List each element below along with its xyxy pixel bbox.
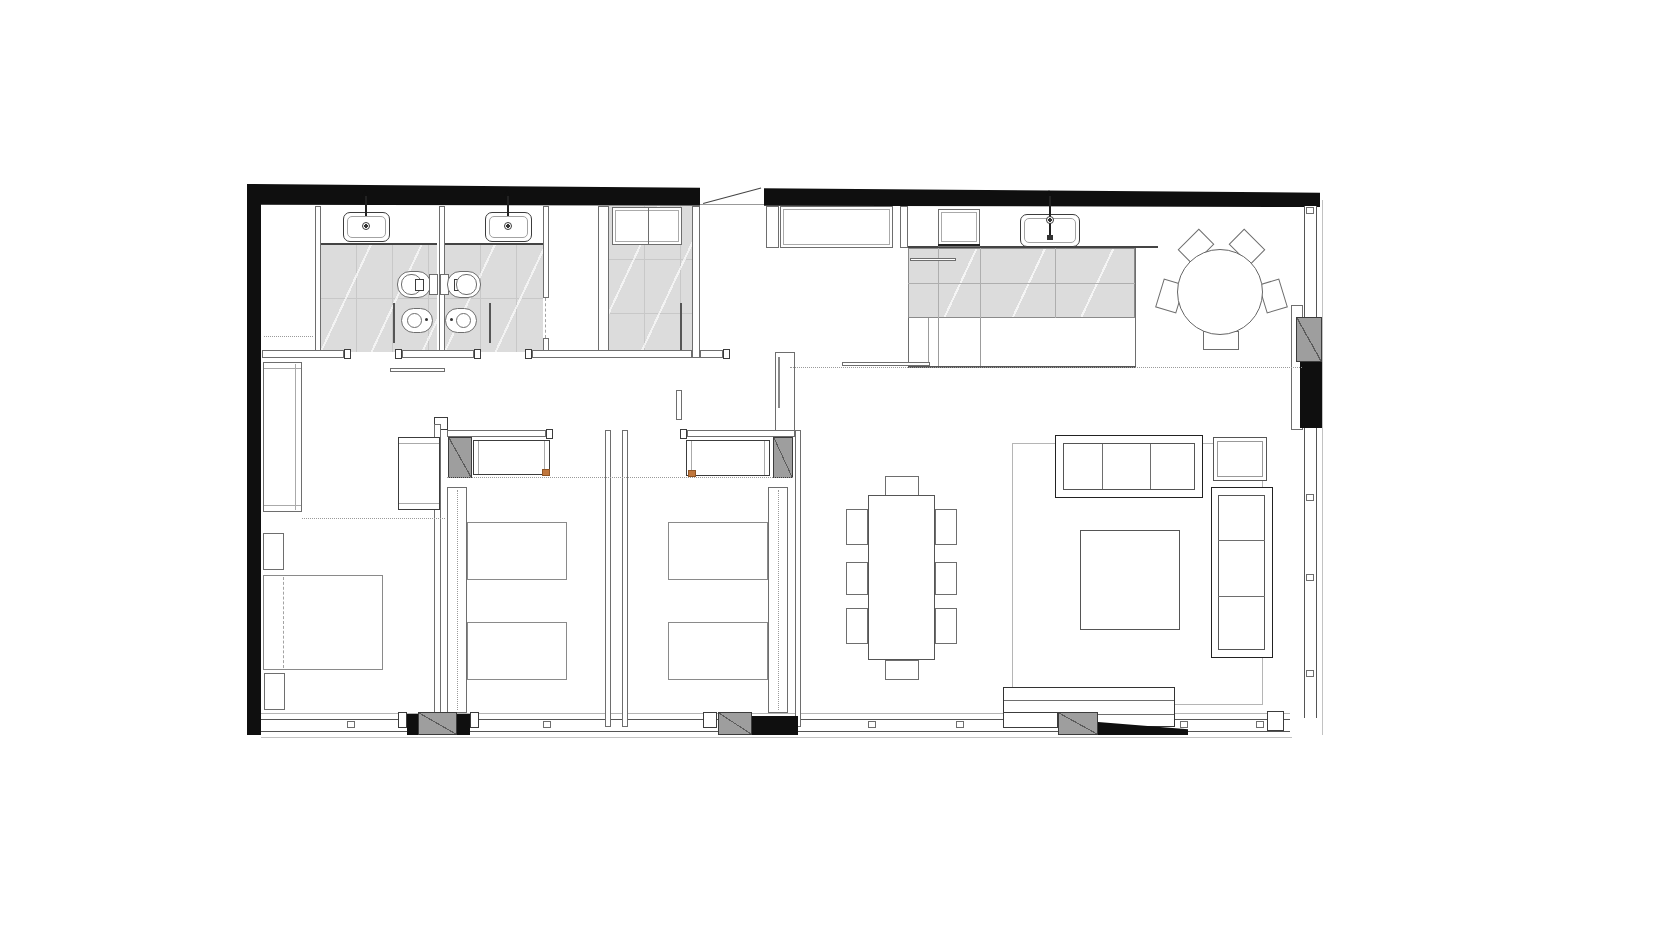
- dining-chair: [935, 509, 957, 545]
- door-jamb: [474, 349, 481, 359]
- entry-door-threshold: [700, 204, 764, 205]
- toilet-flush: [415, 279, 424, 291]
- master-wardrobe: [263, 362, 302, 512]
- bathroom-1-faucet: [365, 196, 367, 216]
- dining-table: [868, 495, 935, 660]
- pier-jamb: [1003, 712, 1058, 728]
- door-jamb: [680, 429, 687, 439]
- master-nightstand: [263, 533, 284, 570]
- laundry-cabinets-inner: [615, 210, 679, 242]
- hall-wall-segment: [700, 350, 723, 358]
- master-desk-inner: [399, 503, 439, 504]
- faucet-arrow-icon: [362, 190, 368, 196]
- master-wardrobe-cap: [264, 505, 301, 506]
- laundry-door-leaf: [680, 303, 682, 352]
- kitchen-faucet-dot: [1046, 216, 1054, 224]
- window-mullion-tick: [347, 721, 355, 728]
- master-double-bed: [263, 575, 383, 670]
- dining-chair: [885, 476, 919, 496]
- laundry-left-wall: [598, 206, 609, 352]
- bedroom-3-north-wall: [687, 430, 795, 437]
- sofa-seat-area: [1218, 495, 1265, 650]
- window-mullion-tick: [1306, 574, 1314, 581]
- door-jamb: [344, 349, 351, 359]
- island-front-line: [980, 318, 981, 366]
- bedroom-2-desk: [473, 440, 550, 475]
- sliding-door-track: [390, 368, 445, 372]
- island-front-line: [938, 318, 939, 366]
- kitchen-left-wall: [900, 206, 908, 248]
- laundry-right-wall: [692, 206, 700, 358]
- master-zone-dotted-line: [302, 518, 445, 519]
- bathroom-2-shower-screen: [489, 303, 491, 343]
- bedroom-3-twin-bed: [668, 522, 768, 580]
- right-outer-face: [1322, 200, 1323, 735]
- pier-black: [407, 714, 418, 735]
- dining-chair: [935, 562, 957, 595]
- bedroom-2-pier: [448, 437, 472, 478]
- master-desk: [398, 437, 440, 510]
- balcony-pier: [718, 712, 752, 735]
- bidet-bowl: [407, 313, 422, 328]
- master-wardrobe-inner: [295, 364, 296, 510]
- window-mullion-tick: [1306, 670, 1314, 677]
- bed-pillow-line: [283, 577, 284, 668]
- toilet-bowl: [456, 274, 477, 295]
- coffee-table: [1080, 530, 1180, 630]
- shower-door-dashed: [545, 298, 546, 338]
- pier-black: [457, 714, 470, 735]
- bedroom-2-twin-bed: [467, 522, 567, 580]
- desk-accent-marker: [542, 469, 550, 476]
- window-mullion-tick: [1306, 494, 1314, 501]
- bathroom-2-counter-edge: [445, 243, 543, 245]
- bidet-drain: [450, 318, 453, 321]
- bedroom-3-twin-bed: [668, 622, 768, 680]
- entry-wardrobe-inner: [783, 209, 890, 245]
- entry-sliding-track: [842, 362, 930, 366]
- bathroom-2-faucet: [507, 196, 509, 216]
- dining-chair: [846, 562, 868, 595]
- window-mullion-tick: [956, 721, 964, 728]
- bathroom-1-counter-edge: [321, 243, 437, 245]
- pier-gray-block: [1296, 317, 1322, 362]
- balcony-pier: [1058, 712, 1098, 735]
- sofa-cushion-divider: [1150, 444, 1151, 489]
- kitchen-cooktop-inner: [941, 212, 977, 242]
- bed3-living-wall: [795, 430, 801, 727]
- balcony-pier: [418, 712, 457, 735]
- master-desk-inner: [399, 443, 439, 444]
- bedroom-2-twin-bed: [467, 622, 567, 680]
- sofa-cushion-divider: [1102, 444, 1103, 489]
- entry-right-wall: [766, 206, 779, 248]
- dining-chair: [846, 608, 868, 644]
- window-mullion-tick: [1180, 721, 1188, 728]
- pier-black: [752, 716, 798, 735]
- bottom-outer-face: [261, 737, 1292, 738]
- desk-end-panel: [478, 441, 479, 474]
- pier-jamb: [703, 712, 717, 728]
- island-side-right: [1135, 248, 1136, 368]
- dining-chair: [846, 509, 868, 545]
- faucet-arrow-icon: [504, 190, 510, 196]
- door-jamb: [723, 349, 730, 359]
- bed2-bed3-wall-b: [622, 430, 628, 727]
- hall-door-leaf: [778, 357, 780, 408]
- pier-jamb: [398, 712, 407, 728]
- bed2-bed3-wall-a: [605, 430, 611, 727]
- kitchen-faucet-base: [1047, 235, 1053, 240]
- floor-plan-canvas: [0, 0, 1676, 938]
- bathroom-2-floor: [445, 245, 543, 352]
- island-front-line: [928, 318, 929, 366]
- door-jamb: [546, 429, 553, 439]
- sofa-cushion-divider: [1218, 540, 1265, 541]
- hall-wall-segment: [532, 350, 692, 358]
- bedroom-2-north-wall: [447, 430, 546, 437]
- bedroom-3-desk: [686, 440, 770, 476]
- toilet-cistern: [429, 274, 438, 295]
- right-glazing: [1304, 206, 1317, 718]
- door-jamb: [395, 349, 402, 359]
- bathroom-2-right-wall: [543, 206, 549, 298]
- rail-center-dotted: [457, 490, 458, 710]
- corner-post: [1267, 711, 1284, 731]
- left-wall: [247, 188, 261, 735]
- bathroom-1-drain: [362, 222, 370, 230]
- bidet-bowl: [456, 313, 471, 328]
- hall-wall-segment: [262, 350, 344, 358]
- bathroom-1-shower-screen: [393, 303, 395, 343]
- armchair-seat: [1217, 441, 1263, 477]
- hall-dotted-line: [790, 367, 1302, 368]
- window-mullion-tick: [1306, 207, 1314, 214]
- island-side-left: [908, 318, 909, 368]
- bidet-drain: [425, 318, 428, 321]
- bedroom-3-door-leaf: [676, 390, 682, 420]
- laundry-cabinet-divider: [648, 207, 649, 245]
- kitchen-sliding-track: [910, 258, 956, 261]
- dining-chair: [885, 660, 919, 680]
- window-mullion-tick: [543, 721, 551, 728]
- island-cabinet-line: [908, 283, 1135, 284]
- desk-end-panel: [764, 441, 765, 475]
- rail-center-dotted: [778, 490, 779, 710]
- bathroom-1-floor: [321, 245, 437, 352]
- pier-black-block: [1300, 362, 1322, 428]
- bathroom-2-drain: [504, 222, 512, 230]
- faucet-arrow-icon: [1046, 190, 1052, 196]
- sofa-seat-area: [1063, 443, 1195, 490]
- desk-accent-marker: [688, 470, 696, 477]
- window-mullion-tick: [1256, 721, 1264, 728]
- kitchen-cooktop-front: [938, 244, 980, 246]
- window-mullion-tick: [868, 721, 876, 728]
- pier-jamb: [470, 712, 479, 728]
- bedroom-3-pier: [773, 437, 793, 478]
- master-nightstand: [264, 673, 285, 710]
- top-wall: [247, 184, 1320, 207]
- dining-chair: [935, 608, 957, 644]
- closet-shelf-dotted-line: [264, 336, 313, 337]
- round-dining-table: [1177, 249, 1263, 335]
- master-wardrobe-cap: [264, 368, 301, 369]
- hall-wall-segment: [402, 350, 474, 358]
- bedroom-dotted-line: [447, 477, 793, 478]
- sofa-cushion-divider: [1218, 596, 1265, 597]
- door-jamb: [525, 349, 532, 359]
- bench-inner-line: [1004, 700, 1174, 701]
